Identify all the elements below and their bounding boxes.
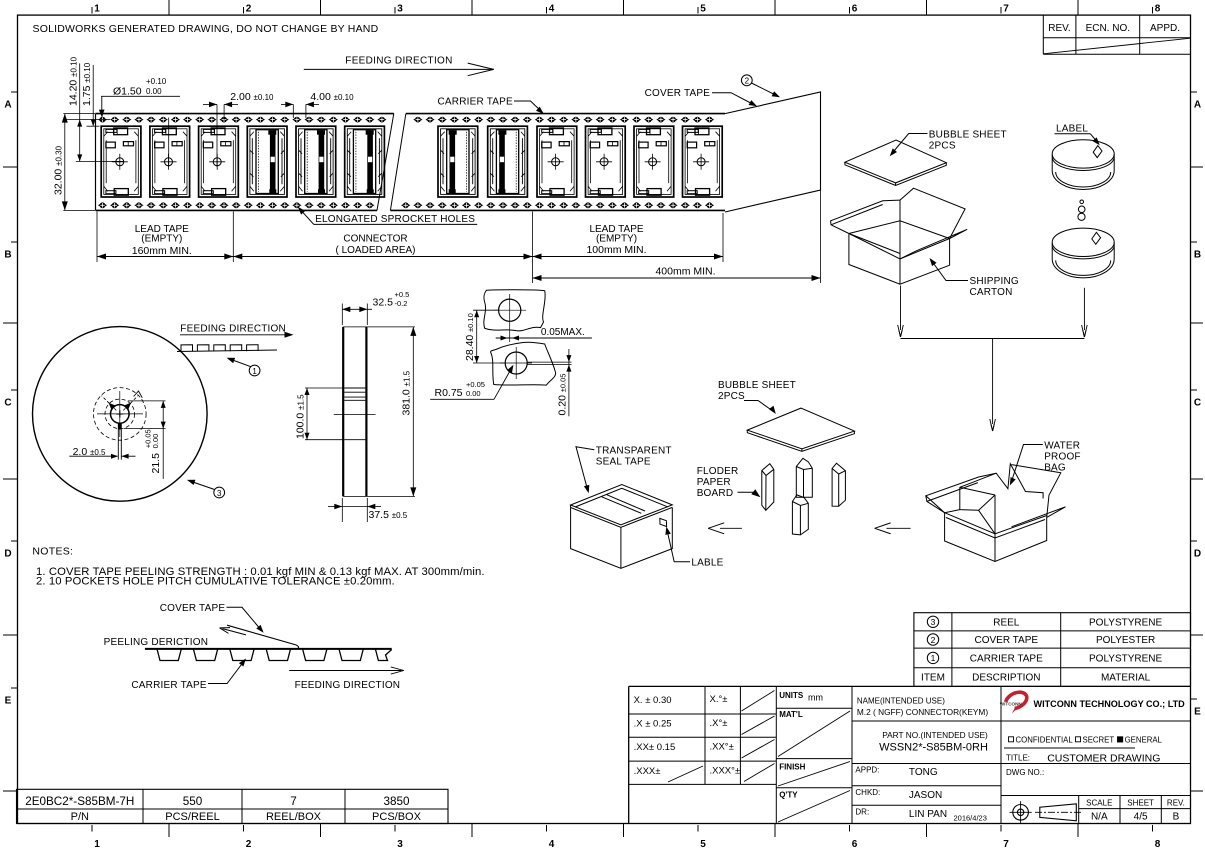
svg-text:C: C bbox=[1194, 398, 1201, 409]
svg-text:REV.: REV. bbox=[1167, 798, 1185, 807]
svg-text:FEEDING DIRECTION: FEEDING DIRECTION bbox=[345, 56, 452, 67]
svg-text:BOARD: BOARD bbox=[697, 488, 734, 499]
svg-text:ELONGATED SPROCKET HOLES: ELONGATED SPROCKET HOLES bbox=[315, 214, 475, 225]
svg-text:WITCONN: WITCONN bbox=[1000, 701, 1023, 706]
svg-text:3850: 3850 bbox=[383, 795, 410, 808]
svg-text:COVER TAPE: COVER TAPE bbox=[645, 88, 711, 99]
svg-text:A: A bbox=[4, 100, 11, 111]
svg-text:2: 2 bbox=[931, 635, 936, 645]
svg-text:0.20 ±0.05: 0.20 ±0.05 bbox=[556, 374, 568, 416]
svg-text:ECN. NO.: ECN. NO. bbox=[1086, 23, 1130, 34]
svg-text:FEEDING DIRECTION: FEEDING DIRECTION bbox=[295, 680, 401, 691]
svg-text:5: 5 bbox=[700, 4, 706, 15]
svg-text:CARRIER TAPE: CARRIER TAPE bbox=[131, 680, 207, 691]
svg-text:D: D bbox=[4, 549, 11, 560]
svg-text:6: 6 bbox=[852, 839, 858, 850]
svg-text:LIN PAN: LIN PAN bbox=[909, 809, 947, 820]
svg-text:DWG NO.:: DWG NO.: bbox=[1006, 768, 1044, 777]
svg-text:DR:: DR: bbox=[855, 808, 869, 817]
svg-text:.XXX°±: .XXX°± bbox=[710, 766, 741, 777]
svg-text:0.00: 0.00 bbox=[151, 434, 160, 449]
svg-text:+0.05: +0.05 bbox=[466, 380, 485, 389]
svg-text:37.5 ±0.5: 37.5 ±0.5 bbox=[369, 509, 408, 521]
svg-text:SECRET: SECRET bbox=[1083, 735, 1115, 744]
svg-text:32.00 ±0.30: 32.00 ±0.30 bbox=[53, 145, 65, 195]
svg-text:M.2 ( NGFF) CONNECTOR(KEYM): M.2 ( NGFF) CONNECTOR(KEYM) bbox=[857, 707, 988, 717]
svg-text:APPD.: APPD. bbox=[1150, 23, 1180, 34]
svg-text:B: B bbox=[1173, 811, 1180, 822]
svg-text:SHIPPING: SHIPPING bbox=[970, 276, 1019, 287]
svg-text:LABLE: LABLE bbox=[691, 557, 723, 568]
svg-text:P/N: P/N bbox=[71, 811, 89, 823]
svg-text:REEL/BOX: REEL/BOX bbox=[266, 811, 322, 823]
svg-text:CARRIER TAPE: CARRIER TAPE bbox=[970, 654, 1043, 665]
svg-text:PROOF: PROOF bbox=[1044, 451, 1081, 462]
svg-text:8: 8 bbox=[1155, 839, 1161, 850]
svg-text:ITEM: ITEM bbox=[921, 673, 945, 684]
svg-text:JASON: JASON bbox=[909, 790, 942, 801]
svg-text:R0.75: R0.75 bbox=[435, 387, 463, 399]
svg-text:BUBBLE SHEET: BUBBLE SHEET bbox=[718, 380, 796, 391]
svg-text:4/5: 4/5 bbox=[1134, 811, 1148, 822]
svg-text:B: B bbox=[4, 250, 11, 261]
svg-text:.X°±: .X°± bbox=[710, 718, 728, 729]
svg-text:2: 2 bbox=[745, 77, 750, 86]
svg-text:POLYSTYRENE: POLYSTYRENE bbox=[1089, 654, 1162, 665]
svg-text:MATERIAL: MATERIAL bbox=[1101, 673, 1151, 684]
svg-text:FEEDING DIRECTION: FEEDING DIRECTION bbox=[180, 323, 286, 334]
svg-text:2.00 ±0.10: 2.00 ±0.10 bbox=[230, 91, 274, 103]
svg-text:4.00 ±0.10: 4.00 ±0.10 bbox=[310, 91, 354, 103]
svg-text:7: 7 bbox=[1003, 4, 1009, 15]
svg-text:1.75 ±0.10: 1.75 ±0.10 bbox=[81, 62, 93, 106]
svg-text:.XX± 0.15: .XX± 0.15 bbox=[634, 742, 676, 753]
svg-text:+0.5: +0.5 bbox=[395, 290, 410, 299]
svg-text:2PCS: 2PCS bbox=[718, 391, 745, 402]
svg-text:TONG: TONG bbox=[909, 767, 938, 778]
svg-text:4: 4 bbox=[549, 839, 555, 850]
svg-text:UNITS: UNITS bbox=[779, 691, 804, 700]
svg-text:DESCRIPTION: DESCRIPTION bbox=[972, 673, 1040, 684]
svg-text:CARRIER TAPE: CARRIER TAPE bbox=[438, 97, 514, 108]
svg-text:(EMPTY): (EMPTY) bbox=[141, 233, 182, 244]
svg-text:2PCS: 2PCS bbox=[929, 140, 956, 151]
svg-text:3: 3 bbox=[217, 489, 222, 498]
svg-text:BAG: BAG bbox=[1044, 462, 1066, 473]
svg-text:.X ± 0.25: .X ± 0.25 bbox=[634, 719, 672, 730]
svg-text:1: 1 bbox=[94, 4, 100, 15]
svg-text:TITLE:: TITLE: bbox=[1006, 754, 1030, 763]
svg-text:WITCONN TECHNOLOGY CO.; LTD: WITCONN TECHNOLOGY CO.; LTD bbox=[1034, 699, 1186, 709]
svg-text:CHKD:: CHKD: bbox=[855, 788, 880, 797]
svg-text:( LOADED AREA): ( LOADED AREA) bbox=[335, 245, 415, 256]
svg-text:3: 3 bbox=[931, 617, 936, 627]
svg-text:CONNECTOR: CONNECTOR bbox=[343, 233, 407, 244]
svg-text:100mm MIN.: 100mm MIN. bbox=[586, 244, 646, 256]
svg-text:CARTON: CARTON bbox=[970, 287, 1013, 298]
svg-text:8: 8 bbox=[1155, 4, 1161, 15]
svg-text:NAME(INTENDED USE): NAME(INTENDED USE) bbox=[857, 697, 945, 706]
svg-text:WSSN2*-S85BM-0RH: WSSN2*-S85BM-0RH bbox=[879, 742, 988, 754]
svg-text:0.05MAX.: 0.05MAX. bbox=[541, 327, 585, 338]
svg-text:B: B bbox=[1194, 250, 1201, 261]
svg-text:160mm MIN.: 160mm MIN. bbox=[132, 245, 192, 257]
svg-text:381.0 ±1.5: 381.0 ±1.5 bbox=[401, 370, 413, 415]
svg-text:Ø1.50: Ø1.50 bbox=[113, 85, 142, 97]
svg-text:APPD:: APPD: bbox=[855, 766, 879, 775]
svg-text:14.20 ±0.10: 14.20 ±0.10 bbox=[68, 56, 80, 106]
svg-text:PART NO.(INTENDED USE): PART NO.(INTENDED USE) bbox=[882, 730, 988, 740]
svg-text:.XX°±: .XX°± bbox=[710, 742, 734, 753]
svg-text:REV.: REV. bbox=[1048, 23, 1070, 34]
svg-text:N/A: N/A bbox=[1091, 811, 1108, 822]
svg-text:1: 1 bbox=[252, 367, 257, 376]
svg-text:FLODER: FLODER bbox=[697, 466, 739, 477]
svg-text:MAT'L: MAT'L bbox=[779, 710, 803, 719]
svg-text:CONFIDENTIAL: CONFIDENTIAL bbox=[1016, 735, 1074, 744]
svg-text:550: 550 bbox=[183, 795, 203, 808]
svg-text:PCS/BOX: PCS/BOX bbox=[372, 811, 422, 823]
svg-text:C: C bbox=[4, 398, 11, 409]
svg-text:SCALE: SCALE bbox=[1086, 798, 1112, 807]
svg-text:X. ± 0.30: X. ± 0.30 bbox=[634, 695, 672, 706]
svg-text:Q'TY: Q'TY bbox=[779, 791, 798, 800]
svg-text:GENERAL: GENERAL bbox=[1125, 735, 1163, 744]
svg-text:1: 1 bbox=[931, 653, 936, 663]
svg-text:A: A bbox=[1194, 100, 1201, 111]
svg-text:28.40 ±0.10: 28.40 ±0.10 bbox=[464, 313, 476, 361]
svg-text:SHEET: SHEET bbox=[1127, 798, 1154, 807]
svg-text:E: E bbox=[5, 696, 12, 707]
svg-text:D: D bbox=[1194, 549, 1201, 560]
svg-text:REEL: REEL bbox=[993, 617, 1020, 628]
svg-text:6: 6 bbox=[852, 4, 858, 15]
svg-text:FINISH: FINISH bbox=[779, 762, 805, 771]
svg-text:32.5: 32.5 bbox=[373, 296, 394, 308]
svg-text:2E0BC2*-S85BM-7H: 2E0BC2*-S85BM-7H bbox=[25, 795, 134, 808]
svg-text:4: 4 bbox=[549, 4, 555, 15]
svg-text:E: E bbox=[1194, 707, 1201, 718]
svg-text:SOLIDWORKS GENERATED DRAWING,: SOLIDWORKS GENERATED DRAWING, DO NOT CHA… bbox=[33, 23, 379, 35]
svg-text:POLYSTYRENE: POLYSTYRENE bbox=[1089, 617, 1162, 628]
svg-text:0.00: 0.00 bbox=[146, 87, 162, 96]
svg-text:NOTES:: NOTES: bbox=[32, 546, 73, 558]
svg-text:0.00: 0.00 bbox=[466, 389, 481, 398]
svg-text:LABEL: LABEL bbox=[1056, 123, 1088, 134]
svg-text:100.0 ±1.5: 100.0 ±1.5 bbox=[294, 394, 306, 439]
svg-text:.XXX±: .XXX± bbox=[634, 766, 661, 777]
svg-text:BUBBLE SHEET: BUBBLE SHEET bbox=[929, 129, 1007, 140]
svg-text:3: 3 bbox=[397, 4, 403, 15]
svg-text:WATER: WATER bbox=[1044, 440, 1080, 451]
svg-text:7: 7 bbox=[290, 795, 297, 808]
svg-text:X.°±: X.°± bbox=[710, 694, 728, 705]
svg-text:POLYESTER: POLYESTER bbox=[1096, 635, 1155, 646]
svg-text:7: 7 bbox=[1003, 839, 1009, 850]
svg-text:TRANSPARENT: TRANSPARENT bbox=[596, 446, 672, 457]
svg-text:21.5: 21.5 bbox=[150, 453, 162, 474]
svg-text:(EMPTY): (EMPTY) bbox=[596, 233, 637, 244]
svg-text:COVER TAPE: COVER TAPE bbox=[160, 603, 226, 614]
svg-text:mm: mm bbox=[808, 693, 823, 703]
svg-text:CUSTOMER DRAWING: CUSTOMER DRAWING bbox=[1047, 753, 1160, 765]
svg-text:PEELING DERICTION: PEELING DERICTION bbox=[104, 637, 209, 648]
svg-text:2. 10 POCKETS HOLE PITCH CUMUL: 2. 10 POCKETS HOLE PITCH CUMULATIVE TOLE… bbox=[36, 576, 395, 588]
svg-text:PAPER: PAPER bbox=[697, 477, 731, 488]
svg-text:400mm MIN.: 400mm MIN. bbox=[655, 266, 715, 278]
svg-text:COVER TAPE: COVER TAPE bbox=[975, 635, 1039, 646]
svg-text:2016/4/23: 2016/4/23 bbox=[954, 814, 987, 823]
svg-text:+0.10: +0.10 bbox=[146, 77, 167, 86]
svg-text:3: 3 bbox=[397, 839, 403, 850]
svg-text:SEAL TAPE: SEAL TAPE bbox=[596, 457, 651, 468]
svg-text:2: 2 bbox=[246, 839, 252, 850]
svg-text:1: 1 bbox=[94, 839, 100, 850]
svg-text:5: 5 bbox=[700, 839, 706, 850]
svg-text:-0.2: -0.2 bbox=[395, 299, 408, 308]
svg-text:PCS/REEL: PCS/REEL bbox=[165, 811, 219, 823]
svg-text:2: 2 bbox=[246, 4, 252, 15]
